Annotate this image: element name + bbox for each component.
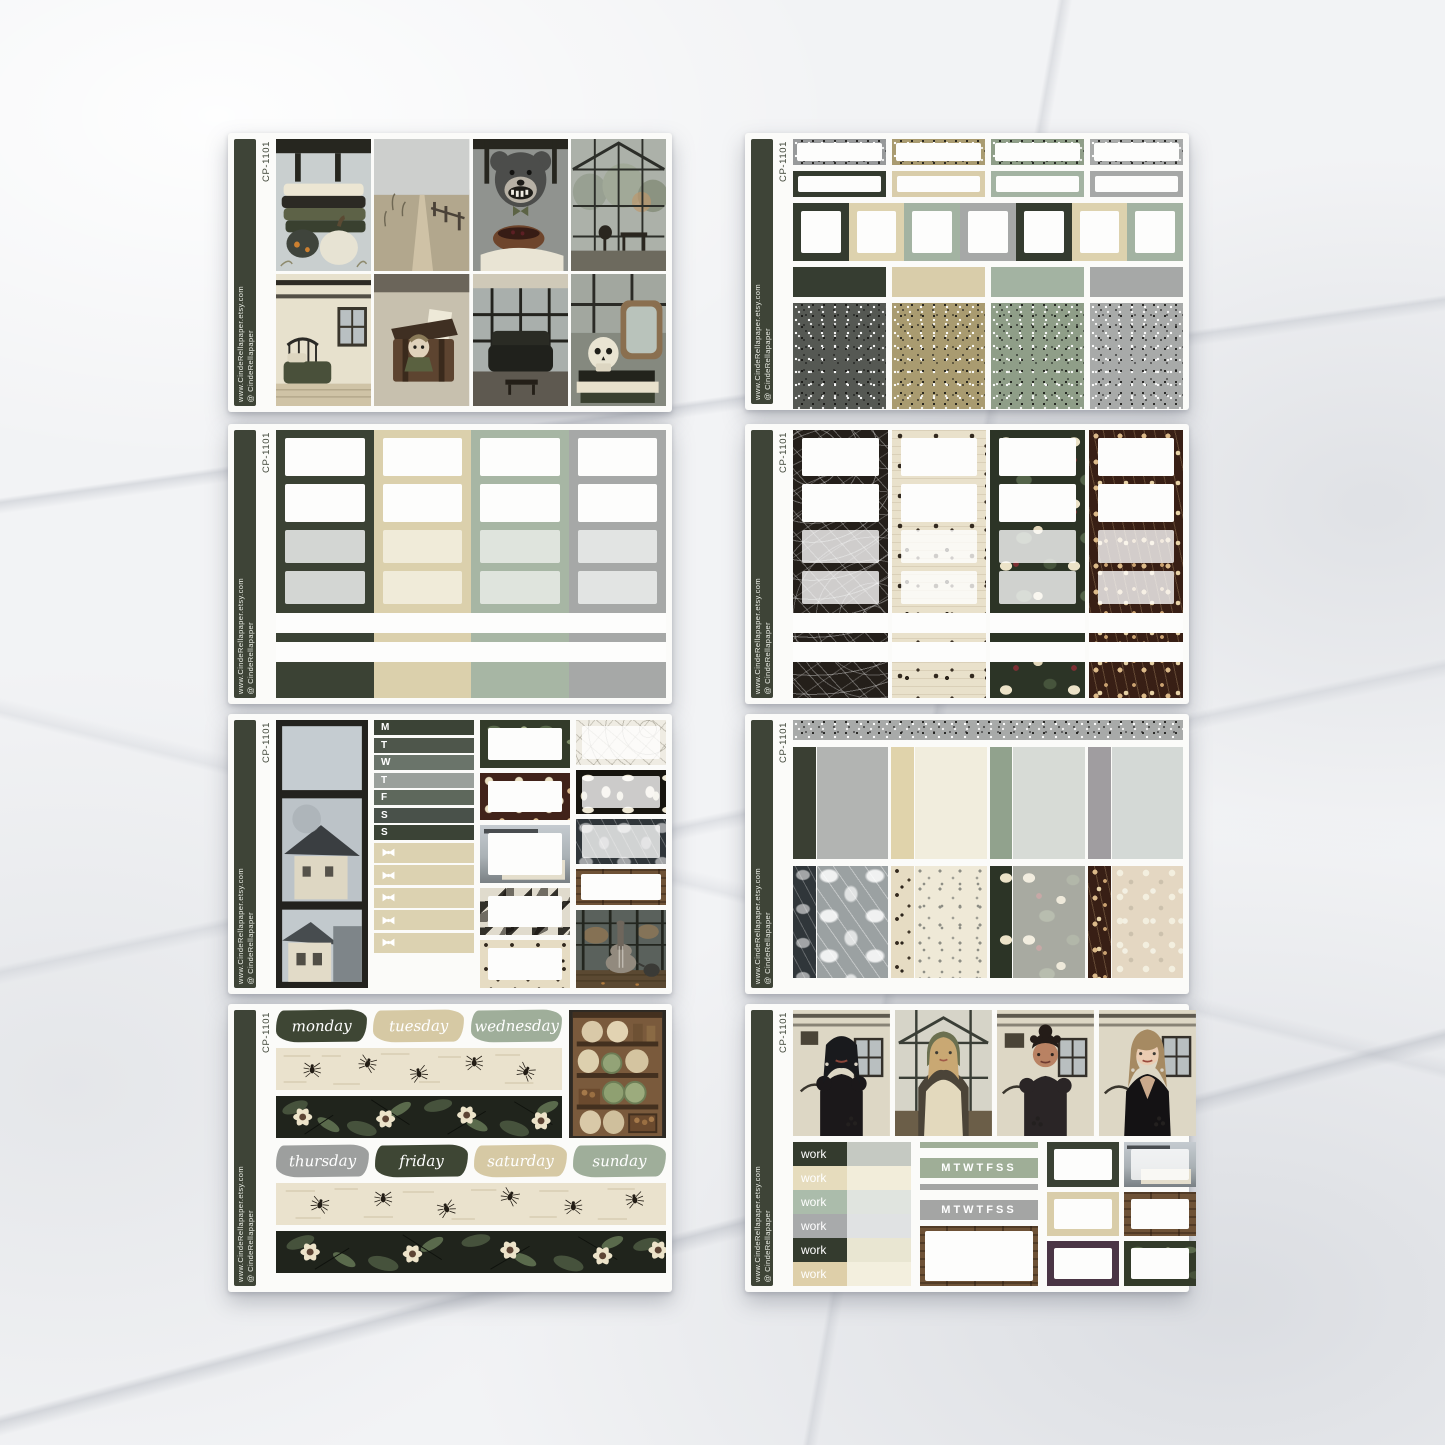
shop-url-label: www.CindeRellapaper.etsy.com (753, 1166, 762, 1282)
half-box-sticker (793, 613, 888, 633)
bow-checklist-strip (374, 865, 474, 885)
sticker-translucent-center (1098, 571, 1175, 604)
sticker-sheet-window-weekdays: www.CindeRellapaper.etsy.com @ CindeRell… (228, 714, 672, 994)
half-box-sticker (892, 613, 987, 633)
spider-washi-strip (276, 1048, 562, 1090)
sticker-blank-center (999, 438, 1076, 476)
weekday-letter: M (381, 722, 389, 733)
sheet-sidebar: www.CindeRellapaper.etsy.com @ CindeRell… (751, 139, 773, 404)
sheet-content (276, 430, 666, 698)
full-box-sticker (578, 484, 658, 522)
narrow-block-sticker (990, 747, 1013, 859)
full-box-sticker (901, 438, 978, 476)
sticker-sheet-headers-glitter: www.CindeRellapaper.etsy.com @ CindeRell… (745, 133, 1189, 410)
full-box-sticker (480, 438, 560, 476)
bow-icon (380, 915, 397, 926)
sticker-blank-center (1094, 143, 1179, 161)
shop-handle-label: @ CindeRellapaper (763, 1210, 772, 1282)
shop-url-label: www.CindeRellapaper.etsy.com (753, 284, 762, 400)
glitter-header-sticker (1090, 139, 1183, 165)
portrait-sticker-row (793, 1010, 1196, 1136)
marble-background: www.CindeRellapaper.etsy.com @ CindeRell… (0, 0, 1445, 1445)
half-box-sticker (1089, 642, 1184, 662)
spider-washi-art (276, 1048, 562, 1090)
weekday-brush-row-top: monday tuesday wednesday (276, 1010, 562, 1042)
web-box-sticker (576, 720, 666, 765)
leaf-border-box-sticker (480, 720, 570, 768)
sticker-blank-center (1098, 438, 1175, 476)
wide-block-sticker (1112, 747, 1183, 859)
block-layout (793, 720, 1183, 988)
full-box-sticker (1098, 484, 1175, 522)
weekday-strip: W (374, 755, 474, 770)
solid-block-row (793, 747, 1183, 859)
narrow-block-sticker (891, 747, 914, 859)
wide-pattern-block-sticker (817, 866, 888, 978)
weekday-brush-sticker: tuesday (373, 1009, 465, 1042)
box-column-dark-green (276, 430, 374, 698)
sticker-translucent-center (802, 530, 879, 563)
sticker-blank-center (897, 176, 980, 192)
bordered-box-sticker (1047, 1142, 1119, 1187)
glitter-header-sticker (892, 139, 985, 165)
box-columns (276, 430, 666, 698)
box-column-spiders (892, 430, 987, 698)
sticker-translucent-center (901, 530, 978, 563)
sticker-blank-center (383, 484, 463, 522)
sheet-code: CP-1101 (261, 722, 272, 763)
weekday-name: saturday (487, 1152, 554, 1171)
work-text: work (801, 1243, 826, 1257)
work-label: work (793, 1214, 847, 1238)
greenhouse-sticker (571, 139, 666, 271)
sticker-blank-center (802, 484, 879, 522)
spacer (920, 1148, 1038, 1158)
half-box-sticker (374, 613, 472, 633)
box-column-spiderweb (793, 430, 888, 698)
block-pair (891, 747, 986, 859)
bw-leaf-box-sticker (576, 770, 666, 815)
sticker-blank-center (488, 781, 562, 813)
bow-checklist-strip (374, 910, 474, 930)
translucent-box-sticker (999, 571, 1076, 604)
solid-strip-sticker (1090, 267, 1183, 297)
block-pair (1088, 866, 1183, 978)
full-box-sticker (383, 484, 463, 522)
sheet-code: CP-1101 (261, 432, 272, 473)
sheet-code: CP-1101 (261, 1012, 272, 1053)
solid-strip-sticker (793, 267, 886, 297)
work-text: work (801, 1171, 826, 1185)
sticker-blank-center (488, 896, 562, 928)
sticker-translucent-center (802, 571, 879, 604)
sticker-blank-center (1131, 1248, 1189, 1279)
ants-parchment-box-sticker (480, 940, 570, 988)
sticker-blank-center (581, 874, 661, 900)
sheet-code-column: CP-1101 (256, 139, 276, 406)
wide-block-sticker (817, 747, 888, 859)
doll-in-trunk-sticker (374, 274, 469, 406)
tinted-box-sticker (285, 530, 365, 563)
block-pair (891, 866, 986, 978)
tinted-box-sticker (285, 571, 365, 604)
window-weekday-layout: M T W T F S S (276, 720, 666, 988)
work-label-extension (847, 1238, 911, 1262)
sheet-content (793, 720, 1183, 988)
weekday-strip: F (374, 790, 474, 805)
spider-washi-art (276, 1183, 666, 1225)
bedroom-sticker (276, 274, 371, 406)
sticker-translucent-center (999, 571, 1076, 604)
block-pair (793, 747, 888, 859)
work-label-extension (847, 1214, 911, 1238)
sheet-content: work work work work work work MTWTFSS (793, 1010, 1196, 1286)
foggy-path-sticker (374, 139, 469, 271)
tinted-box-sticker (383, 571, 463, 604)
foggy-house-box-sticker (480, 825, 570, 882)
weekday-letter: T (381, 775, 387, 786)
shop-url-label: www.CindeRellapaper.etsy.com (236, 868, 245, 984)
translucent-box-sticker (802, 530, 879, 563)
wood-box-sticker (576, 869, 666, 905)
weekday-name: tuesday (389, 1017, 449, 1036)
solid-strip-sticker (892, 267, 985, 297)
patterned-block-row (793, 866, 1183, 978)
weekday-brush-sticker: wednesday (470, 1009, 562, 1042)
sticker-translucent-center (582, 726, 660, 759)
bow-checklist-strip (374, 888, 474, 908)
portrait-sticker-wavy-blonde (1099, 1010, 1196, 1136)
sticker-blank-center (857, 211, 897, 253)
bow-icon (380, 937, 397, 948)
translucent-box-sticker (999, 530, 1076, 563)
sticker-blank-center (995, 143, 1080, 161)
sticker-blank-center (488, 728, 562, 760)
bordered-header-sticker (1090, 171, 1183, 197)
block-pair (793, 866, 888, 978)
weekday-brush-sticker: saturday (474, 1144, 567, 1177)
full-box-sticker (1098, 438, 1175, 476)
weekday-name: thursday (289, 1152, 356, 1171)
weekday-name: monday (292, 1017, 352, 1036)
sticker-translucent-center (582, 776, 660, 809)
sticker-blank-center (1054, 1149, 1112, 1180)
glitter-square-row (793, 303, 1183, 409)
work-text: work (801, 1195, 826, 1209)
tinted-box-sticker (578, 571, 658, 604)
sheet-sidebar: www.CindeRellapaper.etsy.com @ CindeRell… (751, 1010, 773, 1286)
tinted-box-sticker (383, 530, 463, 563)
leaf-box-sticker (1124, 1241, 1196, 1286)
shop-handle-label: @ CindeRellapaper (246, 912, 255, 984)
weekday-brush-sticker: thursday (276, 1144, 369, 1177)
sticker-blank-center (912, 211, 952, 253)
work-label-sticker: work (793, 1238, 911, 1262)
block-pair (990, 747, 1085, 859)
mini-week-column: MTWTFSS MTWTFSS (920, 1142, 1038, 1286)
half-box-sticker (990, 613, 1085, 633)
weekday-strip: M (374, 720, 474, 735)
square-sticker (1016, 203, 1072, 261)
sheet-content: monday tuesday wednesday (276, 1010, 666, 1286)
work-label: work (793, 1142, 847, 1166)
glitter-square-sticker (1090, 303, 1183, 409)
sticker-blank-center (383, 438, 463, 476)
sticker-blank-center (1080, 211, 1120, 253)
sheet-code-column: CP-1101 (256, 720, 276, 988)
half-box-sticker (892, 642, 987, 662)
washi-layout: monday tuesday wednesday (276, 1010, 666, 1286)
sticker-blank-center (1098, 484, 1175, 522)
sticker-sheet-washi-weekdays: www.CindeRellapaper.etsy.com @ CindeRell… (228, 1004, 672, 1292)
work-label-sticker: work (793, 1142, 911, 1166)
floral-washi-strip (276, 1096, 562, 1138)
wood-box-sticker (1124, 1192, 1196, 1237)
tinted-box-sticker (578, 530, 658, 563)
box-column-dark-floral (990, 430, 1085, 698)
narrow-block-sticker (1088, 747, 1111, 859)
sticker-blank-center (285, 484, 365, 522)
sticker-blank-center (925, 1231, 1033, 1281)
sheet-code-column: CP-1101 (773, 139, 793, 404)
work-label-sticker: work (793, 1214, 911, 1238)
maroon-floral-box-sticker (480, 773, 570, 821)
tinted-box-sticker (480, 530, 560, 563)
sheet-code: CP-1101 (778, 722, 789, 763)
dark-livingroom-sticker (473, 274, 568, 406)
wide-pattern-block-sticker (915, 866, 986, 978)
full-box-sticker (901, 484, 978, 522)
sticker-blank-center (285, 438, 365, 476)
box-column-wildflower (1089, 430, 1184, 698)
sticker-sheet-portraits-work: www.CindeRellapaper.etsy.com @ CindeRell… (745, 1004, 1189, 1292)
full-box-sticker (999, 484, 1076, 522)
sticker-blank-center (578, 484, 658, 522)
translucent-box-sticker (901, 571, 978, 604)
weekday-letter: S (381, 827, 388, 838)
sheet-sidebar: www.CindeRellapaper.etsy.com @ CindeRell… (234, 139, 256, 406)
sticker-tinted-center (480, 571, 560, 604)
mini-week-sticker: MTWTFSS (920, 1200, 1038, 1220)
glitter-square-sticker (892, 303, 985, 409)
sticker-blank-center (480, 484, 560, 522)
square-sticker (793, 203, 849, 261)
sticker-blank-center (488, 948, 562, 980)
sticker-tinted-center (285, 571, 365, 604)
spider-washi-strip (276, 1183, 666, 1225)
weekday-strip: T (374, 738, 474, 753)
sheet-sidebar: www.CindeRellapaper.etsy.com @ CindeRell… (234, 430, 256, 698)
bordered-header-sticker (991, 171, 1084, 197)
mini-week-sticker: MTWTFSS (920, 1158, 1038, 1178)
half-box-sticker (793, 642, 888, 662)
box-columns (793, 430, 1183, 698)
half-box-sticker (569, 613, 667, 633)
work-label: work (793, 1238, 847, 1262)
bordered-header-sticker (892, 171, 985, 197)
sticker-blank-center (1054, 1199, 1112, 1230)
sheet-content (793, 139, 1183, 404)
bordered-header-row (793, 171, 1183, 197)
weekday-letter: T (381, 740, 387, 751)
bordered-box-sticker-plum (1047, 1241, 1119, 1286)
shop-url-label: www.CindeRellapaper.etsy.com (753, 578, 762, 694)
narrow-pattern-block-sticker (1088, 866, 1111, 978)
full-box-sticker (802, 438, 879, 476)
foggy-village-window-sticker (276, 720, 368, 988)
sticker-blank-center (1024, 211, 1064, 253)
sticker-blank-center (1054, 1248, 1112, 1279)
sticker-blank-center (798, 176, 881, 192)
sticker-blank-center (480, 438, 560, 476)
solid-strip-row (793, 267, 1183, 297)
translucent-box-sticker (1098, 530, 1175, 563)
bow-icon (380, 847, 397, 858)
square-sticker (960, 203, 1016, 261)
geometric-floral-box-sticker (480, 888, 570, 936)
square-sticker (1072, 203, 1128, 261)
skull-books-sticker (571, 274, 666, 406)
wide-block-sticker (915, 747, 986, 859)
sticker-sheet-color-blocks: www.CindeRellapaper.etsy.com @ CindeRell… (745, 714, 1189, 994)
sticker-sheet-patterned-boxes: www.CindeRellapaper.etsy.com @ CindeRell… (745, 424, 1189, 704)
sheet-code: CP-1101 (778, 432, 789, 473)
photo-sticker-grid (276, 139, 666, 406)
weekday-strip: S (374, 808, 474, 823)
weekday-strip: S (374, 825, 474, 840)
dark-marble-box-sticker (576, 819, 666, 864)
full-box-sticker (999, 438, 1076, 476)
sheet-sidebar: www.CindeRellapaper.etsy.com @ CindeRell… (751, 430, 773, 698)
sheet-sidebar: www.CindeRellapaper.etsy.com @ CindeRell… (234, 1010, 256, 1286)
full-box-sticker (285, 484, 365, 522)
sheet-sidebar: www.CindeRellapaper.etsy.com @ CindeRell… (751, 720, 773, 988)
assorted-box-grid (1047, 1142, 1196, 1286)
tinted-box-sticker (480, 571, 560, 604)
weekday-name: sunday (592, 1152, 646, 1171)
sticker-tinted-center (383, 571, 463, 604)
square-sticker (849, 203, 905, 261)
square-sticker (1127, 203, 1183, 261)
narrow-pattern-block-sticker (990, 866, 1013, 978)
weekday-strip: T (374, 773, 474, 788)
shop-url-label: www.CindeRellapaper.etsy.com (236, 1166, 245, 1282)
work-label-extension (847, 1190, 911, 1214)
weekday-letter: S (381, 810, 388, 821)
box-column-gray (569, 430, 667, 698)
work-label-sticker: work (793, 1166, 911, 1190)
block-pair (990, 866, 1085, 978)
bow-checklist-strip (374, 843, 474, 863)
sticker-blank-center (1095, 176, 1178, 192)
work-label: work (793, 1190, 847, 1214)
glitter-header-row (793, 139, 1183, 165)
weekday-letter: F (381, 792, 387, 803)
sticker-blank-center (999, 484, 1076, 522)
bottom-sticker-groups: work work work work work work MTWTFSS (793, 1142, 1196, 1286)
sheet-code-column: CP-1101 (773, 1010, 793, 1286)
wide-block-sticker (1013, 747, 1084, 859)
block-pair (1088, 747, 1183, 859)
bordered-header-sticker (793, 171, 886, 197)
work-label-sticker: work (793, 1262, 911, 1286)
sticker-tinted-center (480, 530, 560, 563)
full-box-sticker (578, 438, 658, 476)
sticker-blank-center (1135, 211, 1175, 253)
weekday-letter: W (381, 757, 390, 768)
work-text: work (801, 1219, 826, 1233)
work-label-extension (847, 1166, 911, 1190)
spacer (920, 1190, 1038, 1200)
glitter-square-sticker (793, 303, 886, 409)
sticker-blank-center (901, 438, 978, 476)
patterned-box-column (480, 720, 570, 988)
work-label-extension (847, 1142, 911, 1166)
sticker-sheet-solid-boxes: www.CindeRellapaper.etsy.com @ CindeRell… (228, 424, 672, 704)
sheet-code-column: CP-1101 (256, 1010, 276, 1286)
floral-washi-art (276, 1096, 562, 1138)
floral-washi-strip (276, 1231, 666, 1273)
sticker-tinted-center (383, 530, 463, 563)
half-box-sticker (471, 642, 569, 662)
work-label: work (793, 1166, 847, 1190)
sticker-tinted-center (285, 530, 365, 563)
sheet-content: M T W T F S S (276, 720, 666, 988)
glitter-header-sticker (991, 139, 1084, 165)
bow-checklist-strip (374, 933, 474, 953)
sticker-sheet-photo-collage: www.CindeRellapaper.etsy.com @ CindeRell… (228, 133, 672, 412)
sticker-blank-center (996, 176, 1079, 192)
portrait-sticker-black-hair (793, 1010, 890, 1136)
weekday-brush-sticker: friday (375, 1144, 468, 1177)
work-text: work (801, 1267, 826, 1281)
sticker-blank-center (578, 438, 658, 476)
shop-handle-label: @ CindeRellapaper (763, 912, 772, 984)
sticker-translucent-center (1098, 530, 1175, 563)
half-box-sticker (990, 642, 1085, 662)
wide-pattern-block-sticker (1013, 866, 1084, 978)
weekday-brush-sticker: monday (276, 1009, 368, 1042)
sticker-translucent-center (1131, 1149, 1189, 1180)
sticker-blank-center (1131, 1199, 1189, 1230)
shop-url-label: www.CindeRellapaper.etsy.com (753, 868, 762, 984)
functional-sticker-rows (793, 139, 1183, 404)
sheet-content (793, 430, 1183, 698)
mini-week-text: MTWTFSS (941, 1204, 1016, 1216)
shop-handle-label: @ CindeRellapaper (246, 330, 255, 402)
portrait-work-layout: work work work work work work MTWTFSS (793, 1010, 1196, 1286)
sticker-blank-center (901, 484, 978, 522)
full-box-sticker (285, 438, 365, 476)
wood-box-sticker (920, 1226, 1038, 1286)
sheet-code-column: CP-1101 (773, 430, 793, 698)
sheet-code: CP-1101 (778, 1012, 789, 1053)
work-label-column: work work work work work work (793, 1142, 911, 1286)
shop-url-label: www.CindeRellapaper.etsy.com (236, 286, 245, 402)
sheet-code: CP-1101 (261, 141, 272, 182)
weekday-name: friday (399, 1152, 444, 1171)
mini-week-text: MTWTFSS (941, 1162, 1016, 1174)
square-sticker (904, 203, 960, 261)
sheet-code-column: CP-1101 (773, 720, 793, 988)
shop-handle-label: @ CindeRellapaper (246, 622, 255, 694)
half-box-sticker (276, 642, 374, 662)
sticker-blank-center (802, 438, 879, 476)
box-column-tan (374, 430, 472, 698)
glitter-square-sticker (991, 303, 1084, 409)
sheet-code: CP-1101 (778, 141, 789, 182)
shop-url-label: www.CindeRellapaper.etsy.com (236, 578, 245, 694)
